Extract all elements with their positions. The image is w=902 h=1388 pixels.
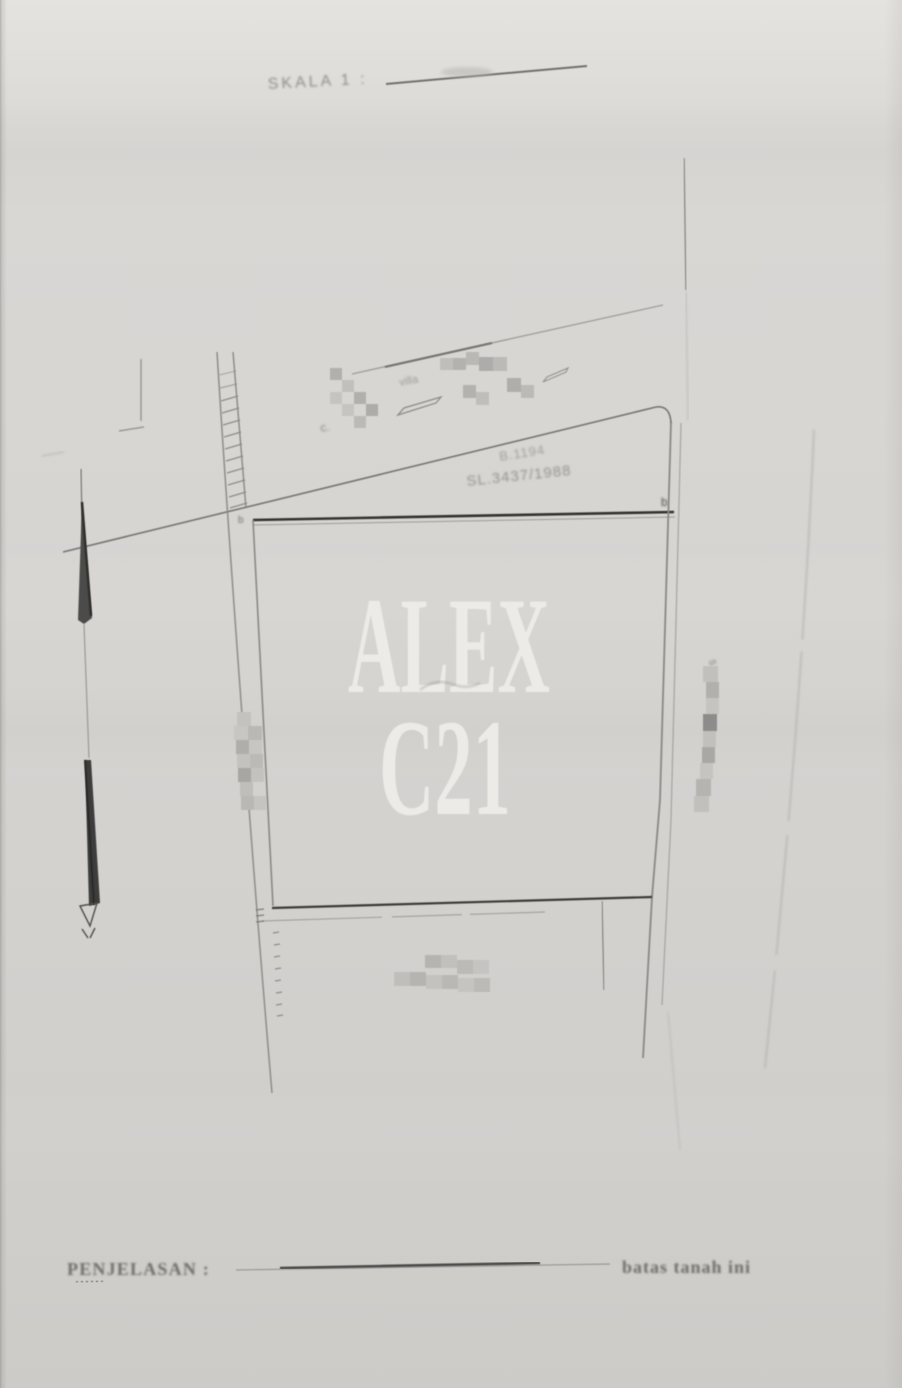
- svg-text:s: s: [706, 658, 721, 666]
- svg-text:b: b: [661, 495, 668, 509]
- svg-text:c.: c.: [319, 420, 331, 435]
- svg-text:SL.3437/1988: SL.3437/1988: [466, 462, 573, 490]
- svg-text:villa: villa: [398, 373, 420, 389]
- svg-text:batas tanah ini: batas tanah ini: [622, 1257, 751, 1277]
- svg-text:PENJELASAN :: PENJELASAN :: [67, 1259, 210, 1279]
- svg-text:C21: C21: [379, 691, 511, 844]
- svg-text:b: b: [238, 515, 244, 526]
- svg-text:B.1194: B.1194: [498, 442, 546, 464]
- svg-text:SKALA 1 :: SKALA 1 :: [267, 71, 368, 93]
